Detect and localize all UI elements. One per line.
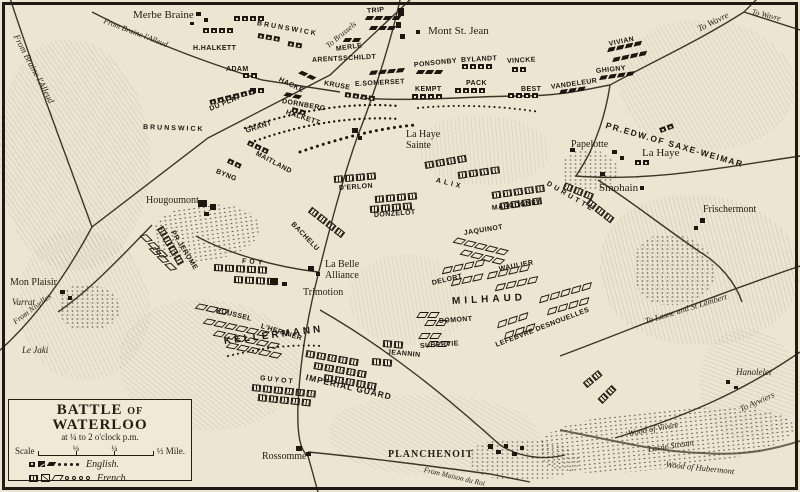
french-cavalry-symbol	[51, 475, 64, 481]
english-skirmish-dot	[58, 463, 61, 466]
english-inf-symbol	[219, 28, 225, 33]
french-cav-symbol	[560, 288, 571, 297]
french-inf-symbol	[603, 212, 614, 223]
french-cav-symbol	[472, 273, 483, 282]
legend-label-french: French.	[97, 473, 128, 484]
english-cav-symbol	[607, 46, 615, 52]
unit-label-french: D'ERLON	[339, 183, 373, 192]
french-inf-symbol	[356, 380, 366, 388]
french-inf-symbol	[381, 204, 391, 212]
english-inf-symbol	[234, 16, 240, 21]
unit-label-english: E.SOMERSET	[355, 78, 405, 88]
road-label: To Lasne and St Lambert	[644, 291, 728, 325]
french-inf-symbol	[605, 385, 616, 396]
unit-label-english: MAITLAND	[254, 150, 292, 175]
english-inf-symbol	[463, 88, 469, 93]
road-label: From Braine l'Alleud	[12, 33, 57, 105]
road-label: To Aywiers	[738, 389, 776, 413]
english-cav-symbol	[634, 41, 642, 47]
unit-symbols-french-inf	[383, 340, 404, 349]
english-inf-symbol	[273, 36, 280, 42]
french-inf-symbol	[258, 266, 267, 273]
unit-symbols-french-cav	[420, 333, 440, 339]
english-inf-symbol	[471, 88, 477, 93]
english-inf-symbol	[420, 94, 426, 99]
unit-label-english: PACK	[466, 80, 487, 87]
french-cav-symbol	[568, 300, 579, 309]
unit-symbols-french-inf	[598, 385, 617, 404]
french-flag-symbol	[41, 474, 50, 482]
french-inf-symbol	[267, 278, 276, 285]
unit-label-french: LEFEBVRE DESNOUELLES	[495, 306, 591, 348]
unit-label-english: BEST	[521, 86, 541, 93]
french-inf-symbol	[424, 160, 434, 168]
unit-symbols-french-inf	[583, 370, 603, 388]
french-inf-symbol	[367, 172, 377, 180]
unit-label-english: KEMPT	[415, 86, 442, 93]
unit-symbols-french-inf	[424, 155, 467, 169]
english-inf-symbol	[234, 162, 242, 169]
scale-bar: Scale ⅛ ¼ ½ Mile.	[15, 445, 185, 456]
french-inf-symbol	[490, 166, 500, 174]
english-cav-symbol	[396, 68, 405, 73]
french-inf-symbol	[295, 389, 305, 397]
french-cav-symbol	[495, 283, 506, 292]
french-inf-symbol	[535, 185, 545, 193]
french-inf-symbol	[305, 350, 315, 358]
unit-label-english: H.HALKETT	[193, 45, 236, 52]
french-inf-symbol	[356, 173, 366, 181]
french-cav-symbol	[508, 315, 518, 325]
french-inf-symbol	[236, 265, 245, 272]
english-inf-symbol	[479, 88, 485, 93]
french-inf-symbol	[245, 277, 254, 284]
unit-label-english: VINCKE	[507, 56, 536, 65]
french-inf-symbol	[214, 264, 223, 271]
scale-ruler: ⅛ ¼	[38, 445, 154, 456]
english-flag-symbol	[38, 461, 45, 467]
town-label: Hanolelet	[736, 368, 772, 377]
french-cav-symbol	[463, 261, 474, 270]
english-cav-symbol	[599, 75, 608, 80]
unit-symbols-english-inf	[659, 123, 674, 132]
french-inf-symbol	[510, 200, 520, 208]
french-inf-symbol	[394, 341, 404, 349]
unit-symbols-english-cav	[370, 26, 395, 30]
english-inf-symbol	[512, 67, 518, 72]
english-inf-symbol	[248, 89, 255, 95]
english-inf-symbol	[643, 160, 649, 165]
french-inf-symbol	[468, 169, 478, 177]
french-infantry-symbol	[29, 475, 38, 482]
unit-label-english: PR.EDW.OF SAXE-WEIMAR	[605, 120, 745, 169]
french-cav-symbol	[474, 259, 485, 268]
french-inf-symbol	[370, 205, 380, 213]
french-inf-symbol	[367, 382, 377, 390]
unit-symbols-english-cav	[344, 38, 360, 42]
french-inf-symbol	[403, 202, 413, 210]
french-inf-symbol	[306, 390, 316, 398]
unit-label-french: JEANNIN	[387, 349, 421, 359]
unit-label-french: GUYOT	[260, 375, 295, 386]
town-label: Rossomme	[262, 452, 306, 463]
unit-label-french: ALIX	[435, 177, 464, 191]
french-inf-symbol	[252, 384, 262, 392]
english-inf-symbol	[288, 41, 295, 47]
town-label: La Belle Alliance	[325, 260, 359, 281]
unit-symbols-french-inf	[372, 358, 393, 367]
french-inf-symbol	[269, 395, 279, 403]
english-inf-symbol	[532, 93, 538, 98]
french-inf-symbol	[334, 376, 344, 384]
english-inf-symbol	[227, 158, 235, 165]
unit-symbols-french-inf	[334, 172, 376, 183]
english-cav-symbol	[352, 38, 361, 42]
french-cav-symbol	[519, 264, 530, 273]
english-inf-symbol	[470, 64, 476, 69]
french-inf-symbol	[345, 378, 355, 386]
unit-symbols-english-inf	[227, 158, 242, 168]
map-subtitle: at ¼ to 2 o'clock p.m.	[15, 433, 185, 443]
waterloo-map: Merbe BraineMont St. JeanPapelotteLa Hay…	[0, 0, 800, 492]
french-inf-symbol	[280, 396, 290, 404]
french-inf-symbol	[301, 399, 311, 407]
unit-label-english: BRUNSWICK	[143, 124, 205, 133]
town-label: Le Jaki	[22, 346, 48, 355]
french-cav-symbol	[497, 319, 507, 329]
english-cav-symbol	[626, 71, 635, 76]
french-cav-symbol	[527, 276, 538, 285]
french-cav-symbol	[508, 266, 519, 275]
english-cav-symbol	[434, 70, 443, 74]
french-cav-symbol	[558, 303, 569, 312]
unit-label-french: BACHELU	[289, 221, 320, 253]
english-inf-symbol	[635, 160, 641, 165]
french-cav-symbol	[429, 333, 442, 339]
french-inf-symbol	[492, 191, 502, 199]
french-cav-symbol	[269, 352, 283, 359]
unit-label-english: ARENTSSCHILDT	[312, 54, 377, 64]
english-cav-symbol	[292, 94, 302, 99]
english-cav-symbol	[621, 54, 629, 60]
french-inf-symbol	[583, 377, 594, 388]
unit-symbols-english-inf	[462, 64, 492, 69]
english-inf-symbol	[520, 67, 526, 72]
french-cav-symbol	[539, 294, 550, 303]
french-inf-symbol	[225, 265, 234, 272]
french-inf-symbol	[335, 366, 345, 374]
english-inf-symbol	[428, 94, 434, 99]
unit-label-french: JAQUINOT	[463, 224, 503, 237]
french-inf-symbol	[435, 159, 445, 167]
unit-label-english: TRIP	[367, 6, 385, 15]
french-inf-symbol	[274, 386, 284, 394]
english-inf-symbol	[295, 42, 302, 48]
town-label: Mon Plaisir	[10, 278, 57, 289]
french-inf-symbol	[334, 175, 344, 183]
english-inf-symbol	[486, 64, 492, 69]
town-label: Hougoumont	[146, 196, 199, 207]
english-inf-symbol	[412, 94, 418, 99]
scale-end-label: ½ Mile.	[157, 446, 185, 456]
unit-symbols-english-inf	[412, 94, 442, 99]
unit-symbols-english-cav	[613, 51, 647, 62]
unit-symbols-english-cav	[417, 70, 442, 74]
french-cav-symbol	[516, 278, 527, 287]
french-cav-symbol	[581, 282, 592, 291]
unit-symbols-french-inf	[214, 264, 267, 274]
french-inf-symbol	[502, 189, 512, 197]
french-cav-symbol	[437, 341, 450, 347]
english-inf-symbol	[251, 73, 257, 78]
french-cav-symbol	[435, 320, 448, 326]
english-inf-symbol	[258, 88, 264, 93]
english-cav-symbol	[392, 16, 401, 20]
road-label: From Maison du Roi	[423, 465, 486, 488]
french-cav-symbol	[462, 276, 473, 285]
french-inf-symbol	[591, 370, 602, 381]
legend-label-english: English.	[86, 459, 119, 470]
scale-tick-quarter: ¼	[111, 444, 117, 453]
english-cav-symbol	[306, 75, 316, 81]
english-inf-symbol	[368, 95, 375, 101]
french-inf-symbol	[349, 358, 359, 366]
english-inf-symbol	[265, 34, 272, 40]
french-cav-symbol	[453, 264, 464, 273]
french-cav-symbol	[140, 234, 153, 242]
french-inf-symbol	[457, 155, 467, 163]
unit-symbols-english-inf	[288, 41, 303, 48]
english-inf-symbol	[227, 28, 233, 33]
scale-tick-eighth: ⅛	[73, 444, 79, 453]
unit-symbols-english-inf	[203, 28, 233, 33]
english-cav-symbol	[625, 43, 633, 49]
unit-label-english: BYLANDT	[461, 55, 498, 64]
french-cav-symbol	[487, 271, 498, 280]
road-label: Wood of Hubermont	[665, 459, 734, 476]
scale-label: Scale	[15, 446, 35, 456]
unit-symbols-french-cav	[428, 341, 448, 347]
unit-symbols-english-inf	[345, 92, 375, 101]
english-inf-symbol	[258, 33, 265, 39]
unit-symbols-english-inf	[234, 16, 264, 21]
french-inf-symbol	[284, 387, 294, 395]
french-inf-symbol	[263, 385, 273, 393]
english-cav-symbol	[617, 72, 626, 77]
french-inf-symbol	[521, 199, 531, 207]
legend-row-english: English.	[29, 459, 185, 470]
french-inf-symbol	[357, 370, 367, 378]
unit-label-english: PONSONBY	[414, 57, 458, 68]
unit-symbols-french-inf	[458, 166, 501, 179]
unit-label-french: IMPERIAL GUARD	[305, 372, 393, 402]
town-label: PLANCHENOIT	[388, 450, 473, 461]
french-cav-symbol	[518, 312, 528, 322]
town-label: Mont St. Jean	[428, 26, 489, 38]
french-inf-symbol	[598, 393, 609, 404]
unit-symbols-french-cav	[495, 276, 537, 291]
english-inf-symbol	[667, 123, 674, 130]
french-cav-symbol	[427, 312, 440, 318]
english-inf-symbol	[254, 144, 262, 151]
road-label: To Wavre	[751, 7, 782, 23]
french-cav-symbol	[266, 342, 280, 349]
english-cav-symbol	[568, 88, 577, 93]
unit-symbols-french-cav	[426, 320, 446, 326]
unit-symbols-english-inf	[243, 73, 257, 78]
english-cav-symbol	[608, 74, 617, 79]
english-inf-symbol	[516, 93, 522, 98]
english-cav-symbol	[616, 44, 624, 50]
town-label: Papelotte	[571, 140, 608, 151]
english-inf-symbol	[659, 126, 666, 133]
unit-symbols-english-inf	[258, 33, 281, 42]
english-inf-symbol	[478, 64, 484, 69]
unit-symbols-french-cav	[196, 303, 228, 315]
french-inf-symbol	[247, 266, 256, 273]
unit-symbols-french-inf	[308, 207, 345, 238]
unit-label-english: ADAM	[226, 66, 249, 73]
town-label: La Haye Sainte	[406, 130, 440, 151]
english-cav-symbol	[559, 89, 568, 94]
town-label: Merbe Braine	[133, 10, 194, 22]
french-inf-symbol	[392, 203, 402, 211]
english-inf-symbol	[508, 93, 514, 98]
french-inf-symbol	[524, 186, 534, 194]
english-cav-symbol	[639, 51, 647, 57]
english-inf-symbol	[524, 93, 530, 98]
english-inf-symbol	[345, 92, 352, 98]
unit-label-english: BYNG	[215, 168, 238, 183]
unit-symbols-english-cav	[370, 68, 404, 75]
french-inf-symbol	[346, 368, 356, 376]
unit-label-english: HACKE	[277, 76, 304, 94]
french-inf-symbol	[383, 359, 393, 367]
french-inf-symbol	[345, 174, 355, 182]
french-cav-symbol	[442, 266, 453, 275]
french-inf-symbol	[290, 397, 300, 405]
french-inf-symbol	[234, 276, 243, 283]
english-inf-symbol	[360, 94, 367, 100]
legend-row-french: French.	[29, 473, 185, 484]
unit-label-french: MILHAUD	[452, 292, 527, 307]
english-inf-symbol	[462, 64, 468, 69]
unit-label-english: KRUSE	[323, 80, 350, 91]
english-cav-symbol	[612, 56, 620, 62]
french-skirmish-dot	[65, 476, 69, 480]
english-inf-symbol	[455, 88, 461, 93]
english-inf-symbol	[243, 73, 249, 78]
french-inf-symbol	[446, 157, 456, 165]
unit-symbols-french-inf	[234, 276, 276, 285]
french-inf-symbol	[386, 194, 396, 202]
french-inf-symbol	[316, 352, 326, 360]
english-cav-symbol	[387, 26, 396, 30]
english-inf-symbol	[242, 16, 248, 21]
french-inf-symbol	[458, 171, 468, 179]
english-inf-symbol	[240, 91, 247, 97]
town-label: Trimotion	[303, 288, 343, 299]
english-inf-symbol	[247, 140, 255, 147]
french-inf-symbol	[256, 277, 265, 284]
french-cav-symbol	[550, 291, 561, 300]
french-cav-symbol	[164, 263, 177, 271]
french-inf-symbol	[338, 356, 348, 364]
french-inf-symbol	[500, 202, 510, 210]
french-cav-symbol	[579, 297, 590, 306]
french-inf-symbol	[327, 354, 337, 362]
english-infantry-symbol	[29, 462, 35, 467]
unit-symbols-english-cav	[299, 70, 315, 80]
french-inf-symbol	[324, 364, 334, 372]
english-inf-symbol	[353, 93, 360, 99]
legend-box: BATTLE OF WATERLOO at ¼ to 2 o'clock p.m…	[8, 399, 192, 481]
french-cav-symbol	[491, 258, 505, 265]
english-cav-symbol	[630, 53, 638, 59]
map-title: BATTLE OF WATERLOO	[15, 403, 185, 433]
french-inf-symbol	[334, 227, 345, 238]
road-label: Lasne Stream	[647, 437, 694, 454]
unit-symbols-english-inf	[512, 67, 526, 72]
french-cav-symbol	[495, 248, 509, 255]
unit-symbols-french-cav	[442, 259, 484, 274]
town-label: Smohain	[599, 183, 638, 195]
french-inf-symbol	[258, 394, 268, 402]
french-cav-symbol	[506, 281, 517, 290]
french-inf-symbol	[383, 340, 393, 348]
unit-symbols-english-inf	[508, 93, 538, 98]
unit-symbols-french-cav	[418, 312, 438, 318]
english-inf-symbol	[436, 94, 442, 99]
unit-symbols-english-inf	[455, 88, 485, 93]
french-cav-symbol	[498, 269, 509, 278]
road-label: Wood of Vivere	[627, 419, 679, 438]
french-cav-symbol	[571, 285, 582, 294]
road-label: To Wavre	[696, 10, 730, 34]
unit-label-english: MERLE	[336, 42, 363, 53]
english-cav-symbol	[577, 86, 586, 91]
french-inf-symbol	[313, 362, 323, 370]
unit-label-english: GRANT	[245, 120, 273, 135]
french-inf-symbol	[532, 197, 542, 205]
english-cavalry-symbol	[47, 462, 56, 466]
unit-symbols-english-inf	[635, 160, 649, 165]
english-inf-symbol	[211, 28, 217, 33]
french-inf-symbol	[372, 358, 382, 366]
french-cav-symbol	[451, 278, 462, 287]
french-inf-symbol	[397, 193, 407, 201]
english-inf-symbol	[258, 16, 264, 21]
french-inf-symbol	[408, 192, 418, 200]
english-inf-symbol	[203, 28, 209, 33]
town-label: Frischermont	[703, 205, 756, 216]
french-inf-symbol	[479, 168, 489, 176]
french-inf-symbol	[375, 195, 385, 203]
french-inf-symbol	[323, 374, 333, 382]
french-inf-symbol	[513, 188, 523, 196]
french-cav-symbol	[547, 306, 558, 315]
unit-symbols-english-cav	[366, 16, 400, 20]
english-inf-symbol	[250, 16, 256, 21]
